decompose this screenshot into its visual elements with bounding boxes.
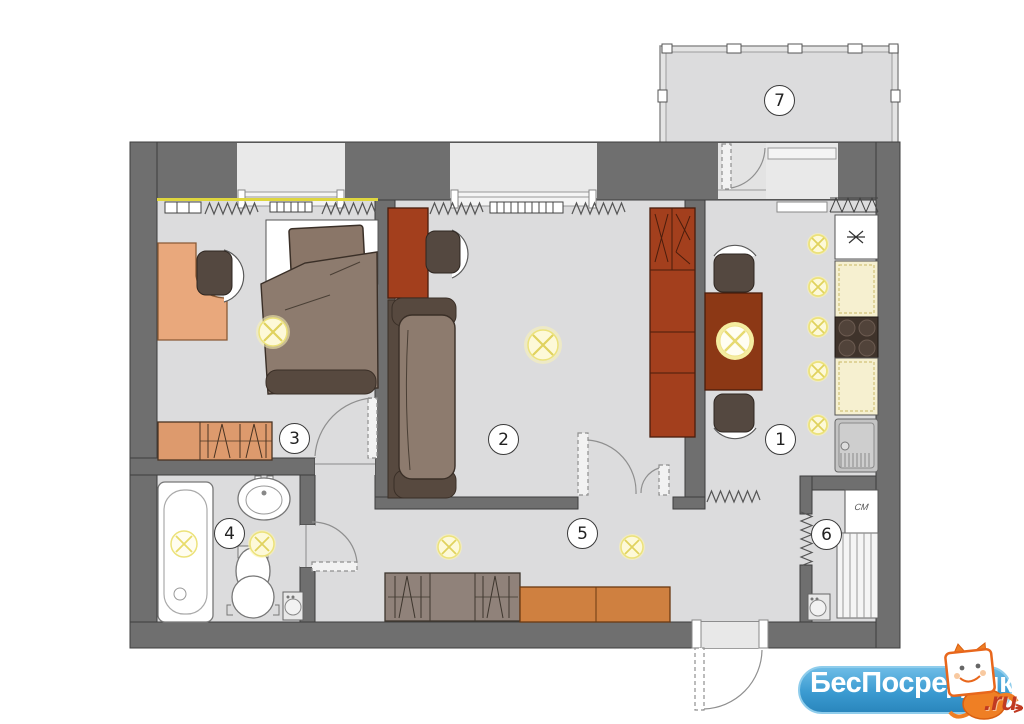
watermark: БесПосредника .ru [796,660,1024,724]
hall-light [436,534,462,560]
room-label-hallway: 5 [567,518,598,549]
bedroom-door-opening [315,458,375,475]
ceiling-light [524,326,562,364]
dining-chair-top [714,245,756,292]
hall-wardrobe [385,573,520,621]
dining-chair-bottom [714,394,756,439]
counter-top [835,261,878,317]
floor-plan-drawing [0,0,1024,724]
bath-light [248,530,276,558]
window-sill-shelf [490,202,563,213]
room-label-utility: 6 [811,519,842,550]
utility-sink [808,594,830,620]
ceiling-light [256,315,290,349]
fridge [835,215,878,259]
bath-light-tub [171,531,197,557]
room-label-living: 2 [488,424,519,455]
sofa [388,298,456,498]
living-wardrobe [650,208,695,437]
watermark-tld: .ru [984,686,1017,717]
living-window [450,143,597,208]
room-label-balcony: 7 [764,85,795,116]
bathroom-door-opening [300,525,315,567]
room-label-bathroom: 4 [214,518,245,549]
balcony-kitchen-window [766,143,838,212]
stove [835,317,878,358]
bedroom-wardrobe [158,422,272,460]
room-label-bedroom: 3 [279,423,310,454]
office-chair [426,230,468,278]
pendant-light [716,322,754,360]
led-strip [157,198,378,201]
washing-machine-label: СМ [844,502,878,512]
corner-sink [283,592,303,620]
kitchen-sink [835,419,878,472]
room-label-kitchen: 1 [765,424,796,455]
hall-cabinet [520,587,670,622]
entrance-opening [692,620,768,648]
entrance-door [695,648,762,710]
bed [261,220,378,394]
office-chair [197,250,244,302]
floor-plan: 1 2 3 4 5 6 7 СМ БесПосредника .ru [0,0,1024,724]
living-desk [388,208,428,298]
counter-bottom [835,358,878,415]
hall-light [619,534,645,560]
shelving [837,533,878,618]
